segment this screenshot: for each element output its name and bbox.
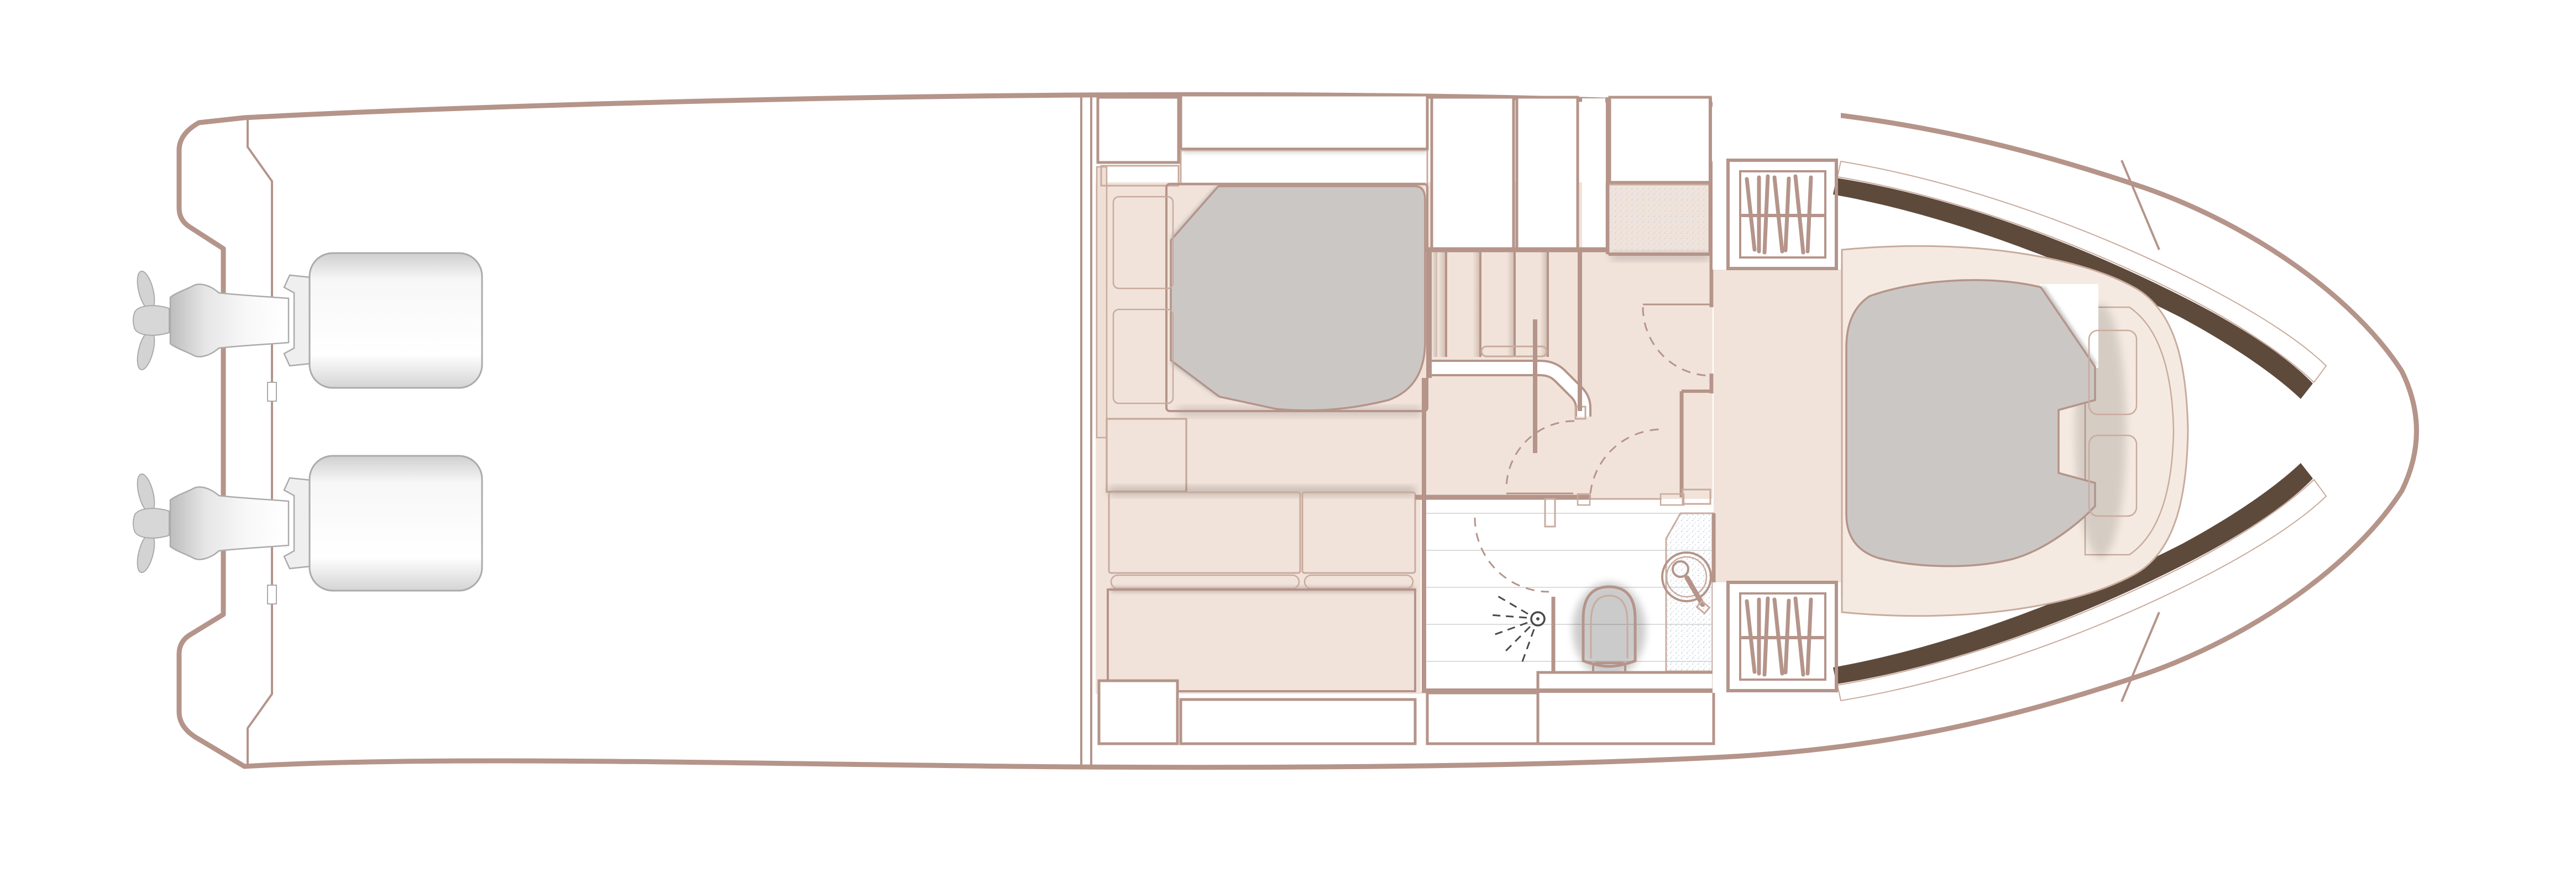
storage-locker bbox=[1538, 672, 1714, 744]
headboard-wood bbox=[1181, 150, 1427, 185]
vanity bbox=[1662, 513, 1714, 671]
door-pocket-floor bbox=[1683, 307, 1713, 498]
bathroom bbox=[1421, 499, 1714, 744]
speckled-counter bbox=[1609, 185, 1709, 254]
bow-bulkhead-line bbox=[2122, 612, 2159, 702]
v-berth bbox=[1842, 246, 2188, 616]
passage bbox=[1582, 98, 1605, 249]
aft-bulkhead bbox=[1081, 97, 1091, 768]
engine-starboard bbox=[133, 253, 482, 401]
upper-room bbox=[1610, 97, 1710, 182]
storage-locker bbox=[1099, 681, 1177, 744]
floor-plan-canvas bbox=[0, 0, 2576, 873]
outboard-engines bbox=[133, 253, 482, 604]
bow-bulkhead-line bbox=[2122, 160, 2159, 250]
bed-mattress bbox=[1171, 186, 1425, 411]
storage-locker bbox=[1181, 700, 1415, 744]
upper-room bbox=[1517, 97, 1578, 250]
port-side-liner-strip bbox=[1097, 167, 1107, 438]
upper-room bbox=[1432, 97, 1514, 250]
storage-locker bbox=[1427, 693, 1538, 744]
locker-top-left bbox=[1098, 97, 1179, 162]
yacht-deck-plan bbox=[0, 0, 2576, 873]
locker-top-center bbox=[1181, 95, 1427, 149]
engine-port bbox=[133, 456, 482, 604]
inner-transom-line bbox=[248, 119, 272, 765]
